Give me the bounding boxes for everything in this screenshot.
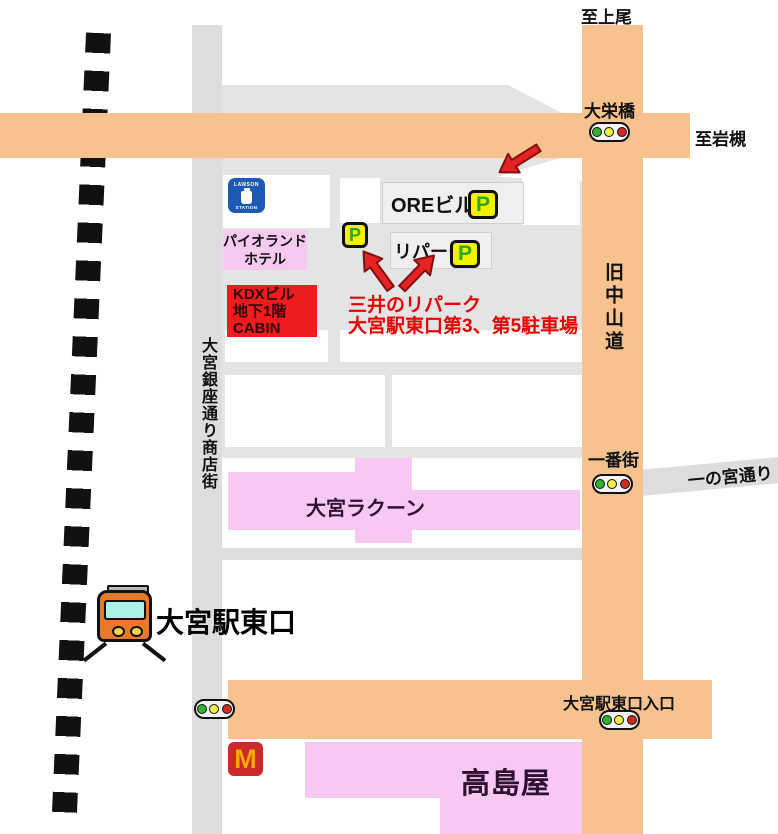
- traffic-light-icon: [599, 710, 640, 730]
- parking-icon: P: [450, 240, 480, 268]
- yellow-light: [209, 704, 219, 714]
- mcdonalds-icon: M: [228, 742, 263, 776]
- ore-building-label: OREビル: [391, 189, 474, 218]
- takashimaya-building: [440, 798, 587, 834]
- destination-ageo-label: 至上尾: [581, 3, 632, 28]
- building: [522, 175, 580, 225]
- paioland-hotel-line1: パイオランド: [223, 232, 307, 250]
- takashimaya-label: 高島屋: [461, 760, 551, 802]
- ginza-shopping-street-label: 大宮銀座通り商店街: [195, 337, 219, 490]
- station-east-exit-label: 大宮駅東口: [156, 601, 296, 641]
- train-window: [104, 600, 146, 620]
- mitsui-repark-note-line1: 三井のリパーク: [348, 295, 578, 316]
- destination-iwatsuki-label: 至岩槻: [695, 125, 746, 150]
- parking-icon: P: [468, 190, 498, 219]
- milk-can-icon: [241, 191, 252, 204]
- train-leg: [142, 642, 167, 662]
- building: [340, 178, 380, 223]
- side-street: [222, 548, 582, 560]
- racoon-label: 大宮ラクーン: [306, 492, 425, 521]
- train-headlight: [112, 626, 125, 637]
- green-light: [602, 715, 612, 725]
- train-headlight: [130, 626, 143, 637]
- green-light: [595, 479, 605, 489]
- racoon-building: [410, 490, 580, 530]
- traffic-light-icon: [589, 122, 630, 142]
- red-light: [620, 479, 630, 489]
- station-text: STATION: [236, 205, 258, 210]
- kyu-nakasendo-label: 旧中山道: [599, 262, 626, 354]
- train-leg: [83, 642, 108, 662]
- kdx-line1: KDXビル: [233, 286, 317, 303]
- kdx-line3: CABIN: [233, 320, 317, 337]
- building: [225, 375, 385, 447]
- ore-building-box: OREビル: [382, 182, 524, 224]
- city-block: [222, 85, 562, 113]
- red-light: [627, 715, 637, 725]
- paioland-hotel-box: パイオランド ホテル: [223, 230, 307, 270]
- traffic-light-icon: [592, 474, 633, 494]
- ichinomiya-street-label: 一の宮通り: [687, 458, 774, 491]
- lawson-station-icon: LAWSON STATION: [228, 178, 265, 213]
- access-map: OREビル リパーク パイオランド ホテル KDXビル 地下1階 CABIN 一…: [0, 0, 778, 834]
- paioland-hotel-line2: ホテル: [244, 250, 286, 268]
- mitsui-repark-note-line2: 大宮駅東口第3、第5駐車場: [348, 316, 578, 337]
- green-light: [592, 127, 602, 137]
- mitsui-repark-note: 三井のリパーク 大宮駅東口第3、第5駐車場: [348, 295, 578, 337]
- yellow-light: [604, 127, 614, 137]
- traffic-light-icon: [194, 699, 235, 719]
- ichibangai-label: 一番街: [588, 446, 639, 471]
- red-light: [617, 127, 627, 137]
- yellow-light: [607, 479, 617, 489]
- kdx-building-box: KDXビル 地下1階 CABIN: [227, 285, 317, 337]
- building: [392, 375, 582, 447]
- kdx-line2: 地下1階: [233, 303, 317, 320]
- lawson-text: LAWSON: [234, 182, 259, 188]
- parking-icon: P: [342, 222, 368, 248]
- yellow-light: [614, 715, 624, 725]
- red-light: [222, 704, 232, 714]
- green-light: [197, 704, 207, 714]
- daieibashi-label: 大栄橋: [584, 97, 635, 122]
- ichinomiya-street: 一の宮通り: [639, 456, 778, 496]
